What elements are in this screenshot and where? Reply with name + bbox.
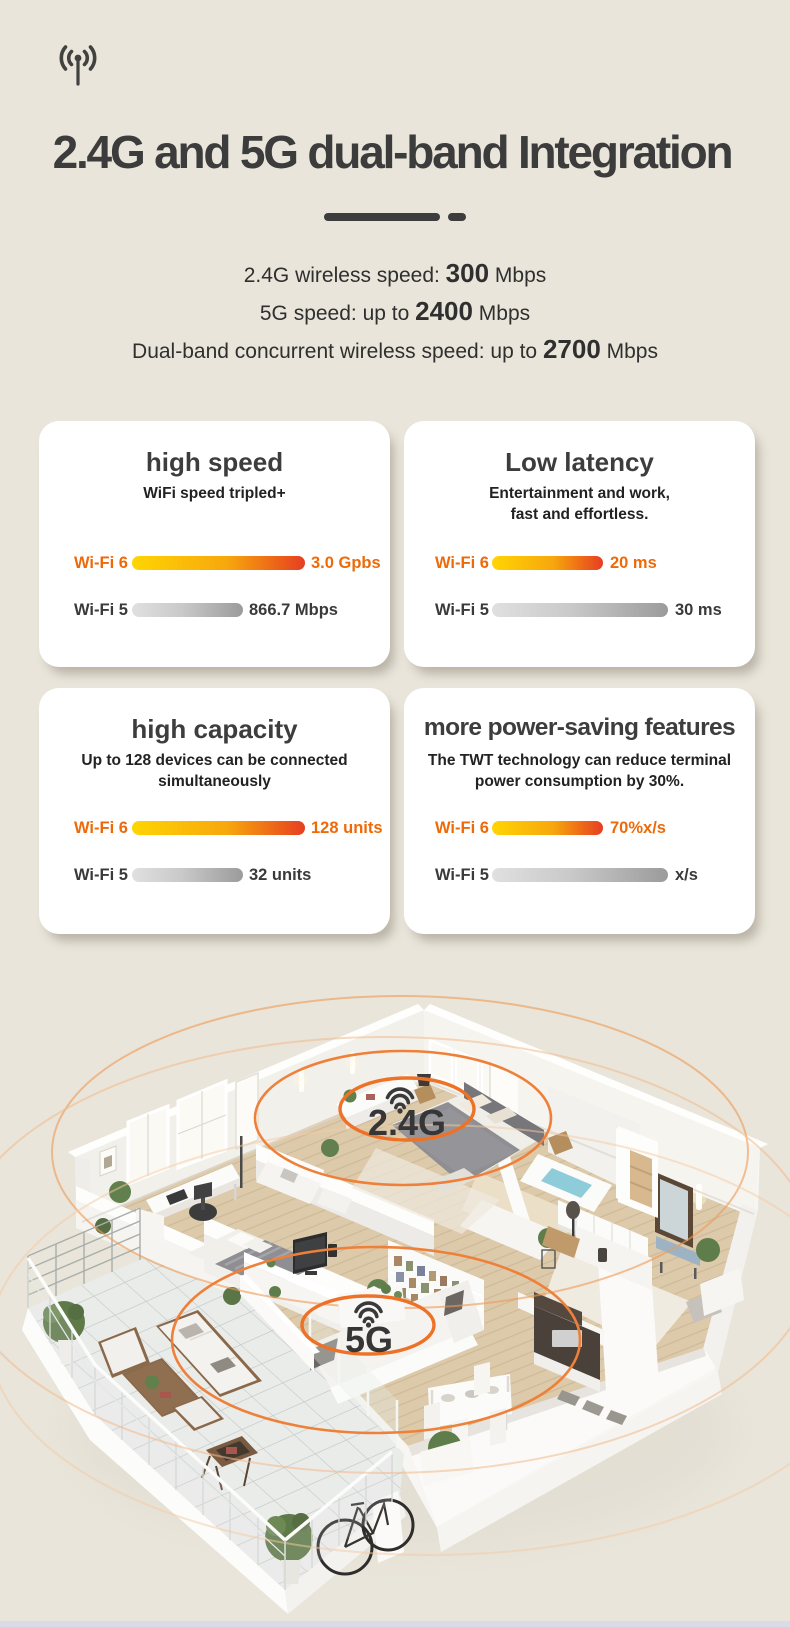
svg-text:2.4G: 2.4G bbox=[368, 1102, 446, 1143]
svg-text:5G: 5G bbox=[345, 1319, 393, 1360]
